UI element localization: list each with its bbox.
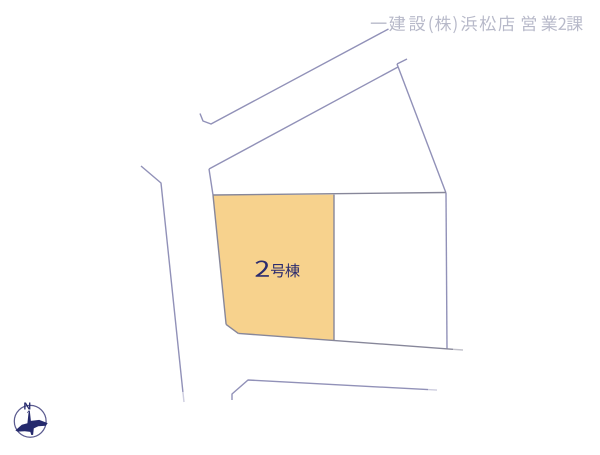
svg-text:N: N — [24, 400, 32, 412]
